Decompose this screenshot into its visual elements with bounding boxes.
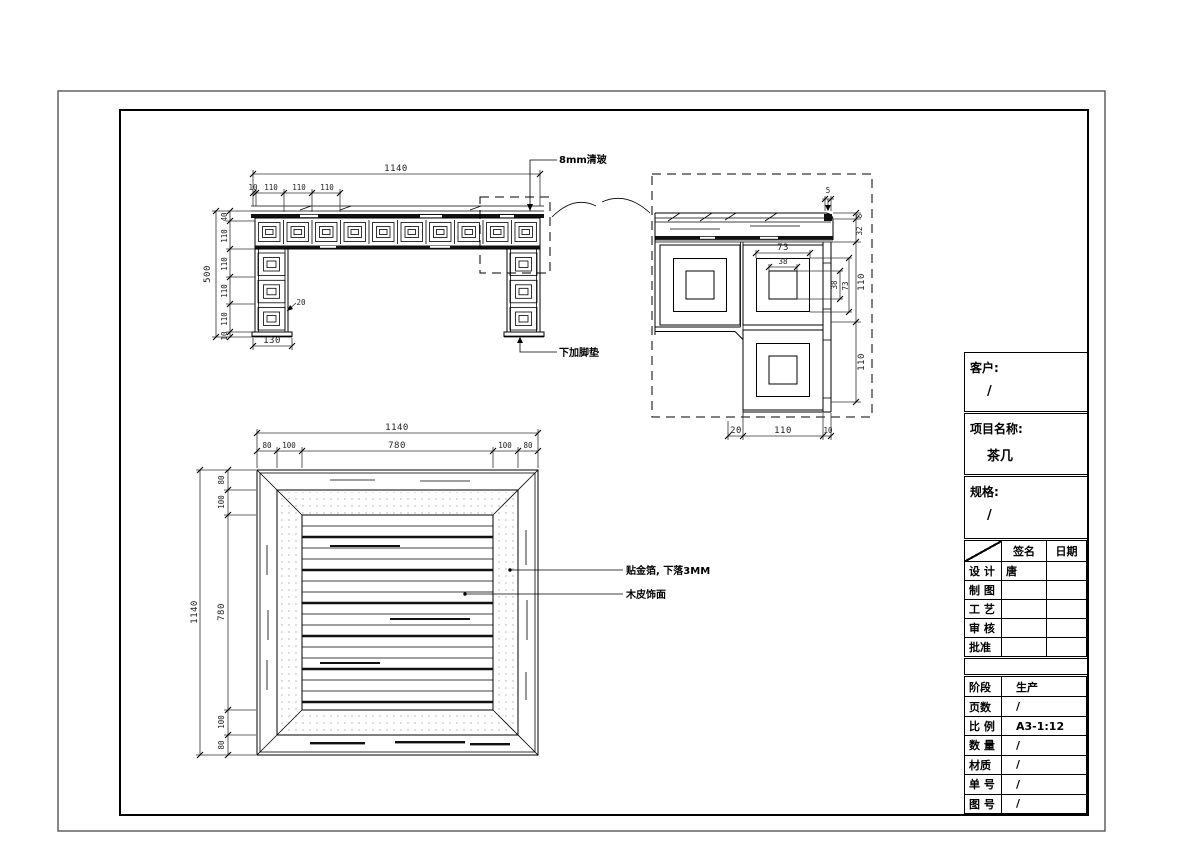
dim-plan-left-2: 780 <box>217 603 227 621</box>
dim-elev-height: 500 <box>203 265 213 283</box>
dim-detail-mid-h: 73 <box>841 281 850 290</box>
elevation-labels: 8mm清玻 下加脚垫 <box>517 153 608 359</box>
project-box: 项目名称: 茶几 <box>964 413 1088 475</box>
dim-elev-top-2: 110 <box>292 183 306 192</box>
customer-label: 客户: <box>965 353 1087 376</box>
info-table: 阶段 生产 页数 / 比 例 A3-1:12 数 量 / 材质 / 单 号 / … <box>964 676 1087 814</box>
elevation-dimensions: 1140 10 110 110 110 500 40 110 110 110 1… <box>203 164 543 350</box>
dim-detail-bottom-0: 20 <box>730 426 742 436</box>
dim-plan-left-4: 80 <box>217 740 226 750</box>
dim-elev-left-1: 110 <box>220 229 229 243</box>
sign-row-date <box>1046 618 1086 637</box>
callout-squiggle <box>552 198 650 217</box>
dim-elev-left-3: 110 <box>220 284 229 298</box>
apron-band <box>255 218 540 249</box>
info-row-value: / <box>1001 774 1086 793</box>
spec-label: 规格: <box>965 477 1087 500</box>
dim-detail-right-1: 32 <box>855 226 864 235</box>
dim-elev-left-5: 10 <box>220 331 229 341</box>
detail-view: 5 8 32 110 110 73 38 38 73 20 110 10 <box>652 174 872 440</box>
dim-detail-overhang: 5 <box>826 186 831 195</box>
dim-elev-left-0: 40 <box>220 212 229 222</box>
dim-plan-height: 1140 <box>190 600 200 624</box>
dim-plan-width: 1140 <box>385 423 409 433</box>
detail-top <box>655 213 833 335</box>
sign-row-label: 制 图 <box>965 580 1001 599</box>
project-value: 茶几 <box>965 437 1087 464</box>
info-row-label: 页数 <box>965 696 1001 715</box>
sign-row-date <box>1046 580 1086 599</box>
sign-col-header: 签名 <box>1001 541 1046 561</box>
dim-plan-top-0: 80 <box>262 441 272 450</box>
sign-row-label: 批准 <box>965 637 1001 656</box>
gold-foil-label: 贴金箔, 下落3MM <box>625 564 710 577</box>
dim-detail-bottom-2: 10 <box>823 426 833 435</box>
date-col-header: 日期 <box>1046 541 1086 561</box>
dim-elev-top-1: 110 <box>264 183 278 192</box>
left-leg <box>252 249 292 337</box>
dim-plan-left-1: 100 <box>217 495 226 509</box>
sign-row-sign: 唐 <box>1001 561 1046 580</box>
title-block: 客户: / 项目名称: 茶几 规格: / 签名 日期 设 计 唐 制 图 工 艺… <box>964 352 1088 815</box>
dim-detail-right-2: 110 <box>857 273 867 291</box>
dim-plan-top-4: 80 <box>523 441 533 450</box>
sign-row-label: 审 核 <box>965 618 1001 637</box>
dim-inset: 20 <box>296 298 306 307</box>
detail-dimensions: 5 8 32 110 110 73 38 38 73 20 110 10 <box>725 186 867 440</box>
sign-table-corner <box>965 541 1001 561</box>
elevation-view: 1140 10 110 110 110 500 40 110 110 110 1… <box>203 153 650 359</box>
dim-plan-left-0: 80 <box>217 475 226 485</box>
customer-value: / <box>965 376 1087 399</box>
info-row-label: 单 号 <box>965 774 1001 793</box>
sign-row-label: 工 艺 <box>965 599 1001 618</box>
dim-detail-inner-w: 38 <box>778 257 788 266</box>
dim-elev-top-0: 10 <box>248 183 258 192</box>
info-row-value: A3-1:12 <box>1001 716 1086 735</box>
dim-detail-bottom-1: 110 <box>774 426 792 436</box>
footpad-label: 下加脚垫 <box>559 346 599 359</box>
drawing-sheet: 1140 10 110 110 110 500 40 110 110 110 1… <box>0 0 1191 842</box>
dim-detail-inner-h: 38 <box>830 280 839 290</box>
info-row-value: 生产 <box>1001 677 1086 696</box>
customer-box: 客户: / <box>964 352 1088 412</box>
spec-value: / <box>965 500 1087 523</box>
dim-plan-left-3: 100 <box>217 715 226 729</box>
info-row-value: / <box>1001 755 1086 774</box>
glass-top <box>251 206 544 218</box>
sign-row-date <box>1046 637 1086 656</box>
dim-detail-right-0: 8 <box>855 213 864 218</box>
sign-row-date <box>1046 599 1086 618</box>
detail-boundary <box>652 174 872 417</box>
info-row-label: 比 例 <box>965 716 1001 735</box>
info-row-value: / <box>1001 794 1086 813</box>
dim-plan-top-1: 100 <box>282 441 296 450</box>
sign-row-label: 设 计 <box>965 561 1001 580</box>
dim-leg-width: 130 <box>263 336 281 346</box>
sign-row-date <box>1046 561 1086 580</box>
spacer-box <box>964 658 1088 675</box>
signature-table: 签名 日期 设 计 唐 制 图 工 艺 审 核 批准 <box>964 540 1087 657</box>
plan-view: 1140 80 100 780 100 80 1140 80 100 780 1… <box>190 423 710 758</box>
sign-row-sign <box>1001 599 1046 618</box>
info-row-label: 材质 <box>965 755 1001 774</box>
sign-row-sign <box>1001 580 1046 599</box>
dim-plan-top-3: 100 <box>498 441 512 450</box>
info-row-label: 数 量 <box>965 735 1001 754</box>
dim-elev-left-2: 110 <box>220 257 229 271</box>
right-leg <box>504 249 544 337</box>
sign-row-sign <box>1001 637 1046 656</box>
sign-row-sign <box>1001 618 1046 637</box>
dim-elev-left-4: 110 <box>220 312 229 326</box>
spec-box: 规格: / <box>964 476 1088 539</box>
dim-elev-top-3: 110 <box>320 183 334 192</box>
dim-detail-right-3: 110 <box>857 353 867 371</box>
glass-label: 8mm清玻 <box>559 153 608 166</box>
project-label: 项目名称: <box>965 414 1087 437</box>
veneer-label: 木皮饰面 <box>625 588 666 601</box>
info-row-label: 图 号 <box>965 794 1001 813</box>
info-row-value: / <box>1001 735 1086 754</box>
info-row-value: / <box>1001 696 1086 715</box>
dim-plan-top-2: 780 <box>388 441 406 451</box>
info-row-label: 阶段 <box>965 677 1001 696</box>
dim-elev-width: 1140 <box>384 164 408 174</box>
dim-detail-mid-w: 73 <box>777 243 789 253</box>
